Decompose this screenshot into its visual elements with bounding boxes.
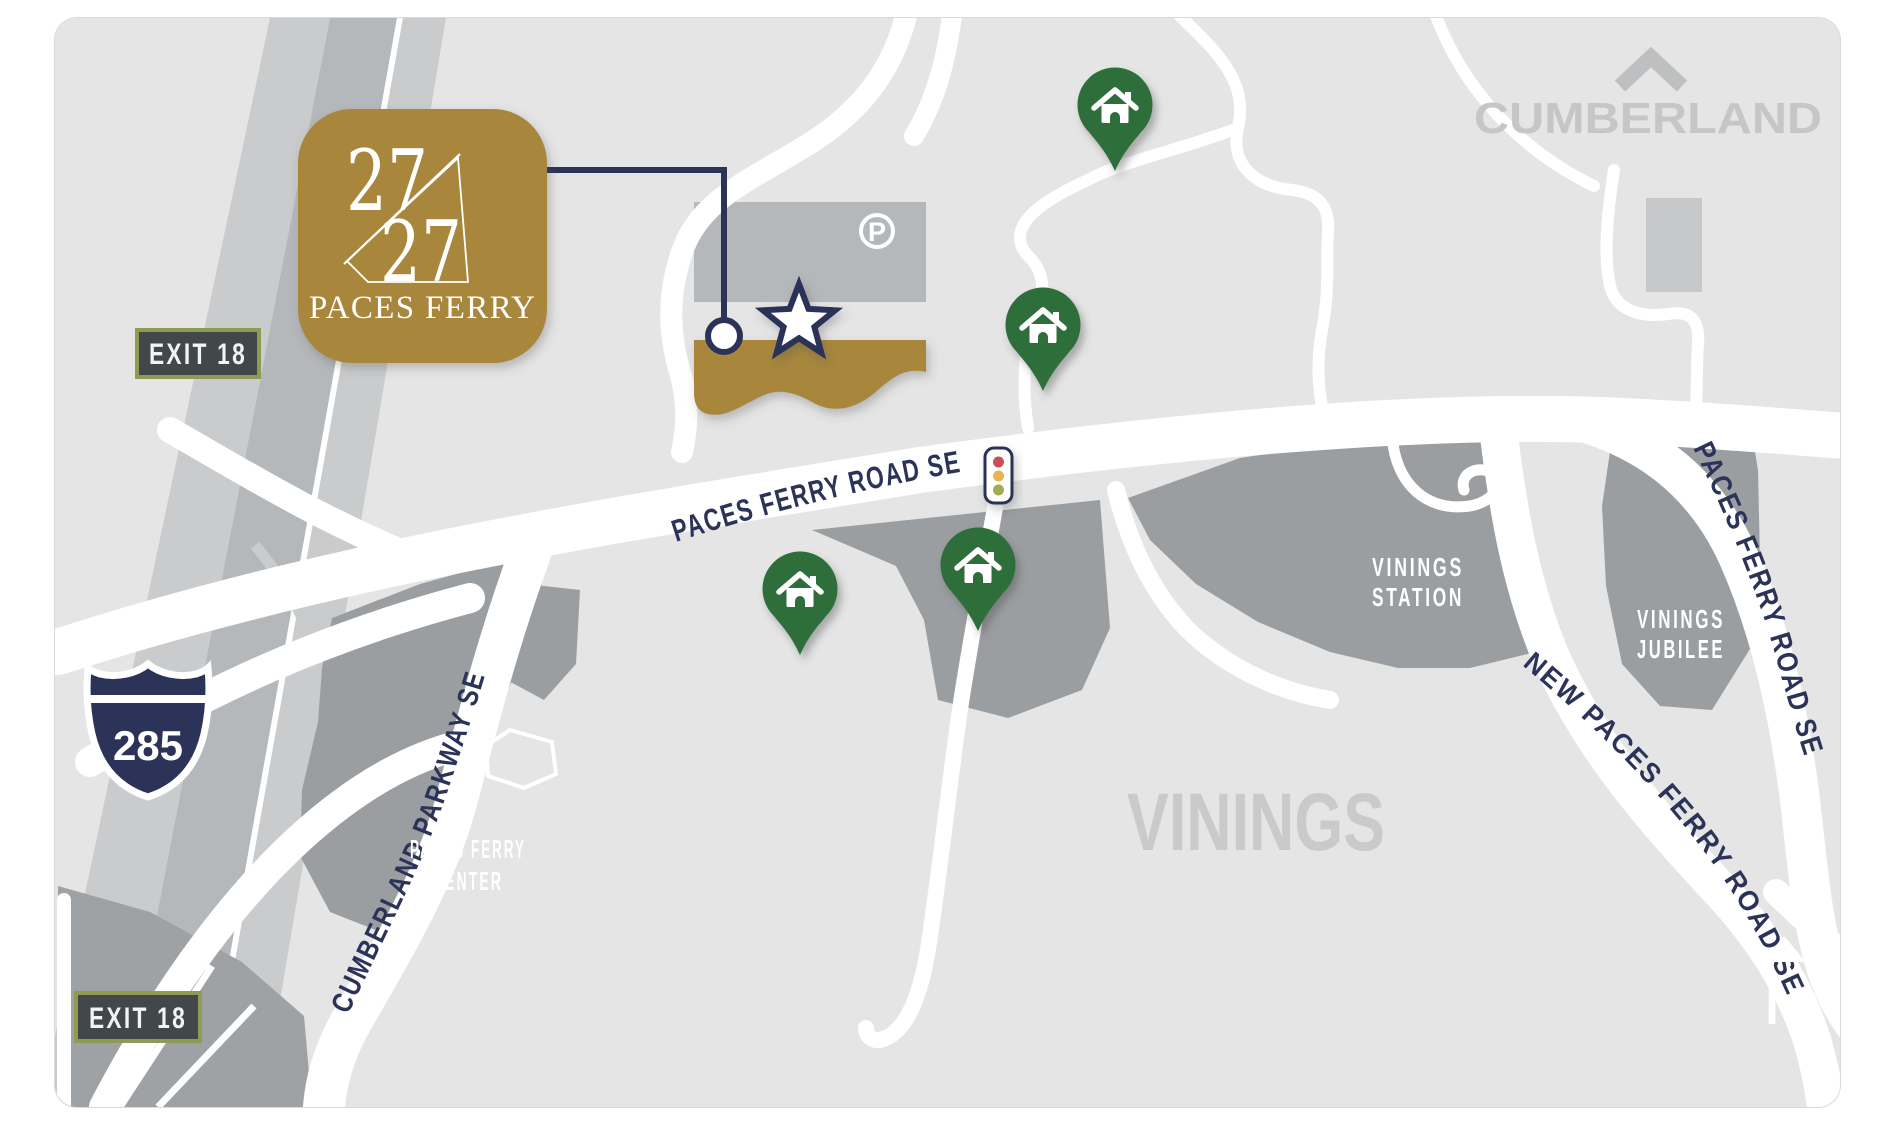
interstate-number: 285 <box>113 722 183 769</box>
exit-badge-top: EXIT 18 <box>137 330 259 377</box>
vinings-station-line1: VININGS <box>1372 552 1464 582</box>
logo-2727-paces-ferry[interactable]: 27 27 PACES FERRY <box>298 109 547 363</box>
traffic-light-icon <box>985 448 1012 503</box>
parking-letter: P <box>868 217 886 247</box>
site-dot-marker <box>708 320 740 352</box>
page: P <box>0 0 1904 1132</box>
compass-letter: N <box>1765 978 1803 1036</box>
paces-ferry-center-line1: PACES FERRY <box>410 834 526 864</box>
exit-badge-top-label: EXIT 18 <box>149 338 247 371</box>
map-card: P <box>55 18 1840 1107</box>
vinings-jubilee-line1: VININGS <box>1637 604 1725 634</box>
building-block <box>1646 198 1702 292</box>
vinings-label: VININGS <box>1127 777 1385 868</box>
vinings-station-line2: STATION <box>1372 582 1464 612</box>
exit-badge-bottom: EXIT 18 <box>76 993 200 1041</box>
cumberland-label: CUMBERLAND <box>1474 94 1822 143</box>
vinings-jubilee-line2: JUBILEE <box>1637 634 1725 664</box>
site-map: P <box>55 18 1840 1107</box>
logo-name: PACES FERRY <box>309 290 535 326</box>
exit-badge-bottom-label: EXIT 18 <box>89 1002 187 1035</box>
parking-building <box>694 202 926 302</box>
paces-ferry-center-line2: CENTER <box>433 866 503 896</box>
